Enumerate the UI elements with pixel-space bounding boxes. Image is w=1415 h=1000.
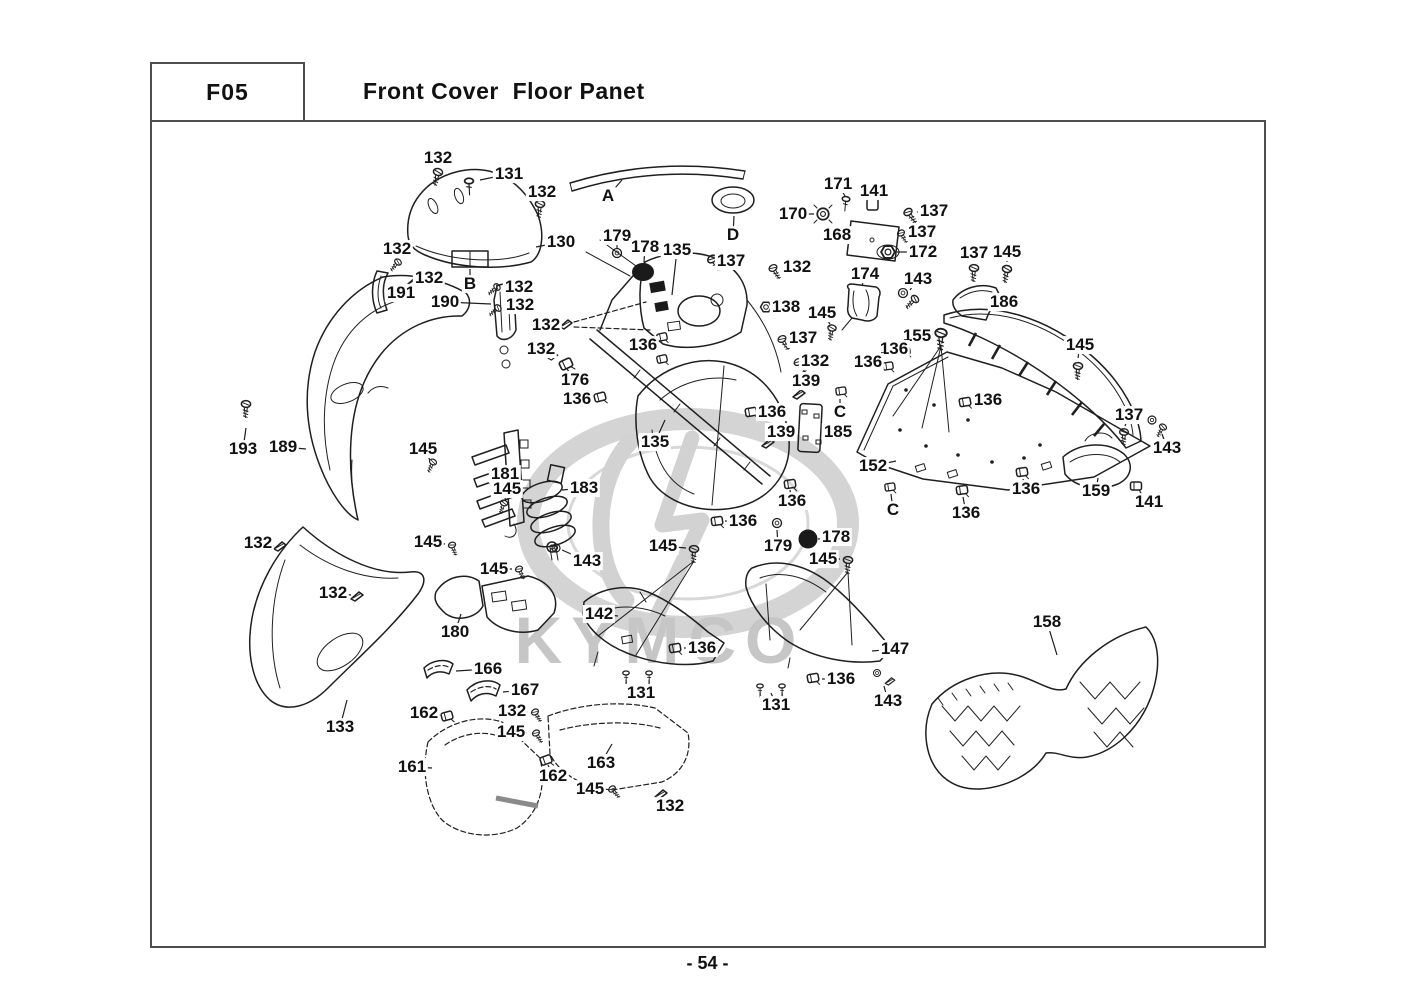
part-166-clip [424,661,453,678]
fasteners-mid-area [441,479,895,799]
part-189-front-cover [307,275,469,520]
part-190-bracket [494,284,516,368]
part-d-grommet [712,187,754,213]
part-147-inner-panel [746,563,891,668]
part-133-front-fender-panel [250,527,424,707]
part-152-floor-panel [857,309,1150,490]
part-191-strip [373,271,389,313]
part-167-clip [467,681,500,701]
catalog-page: { "title_block": { "code": "F05", "title… [0,0,1415,1000]
part-180-bracket [435,576,556,632]
fasteners-135-area [548,249,847,449]
part-174-bracket [842,284,920,330]
part-161-mud-panel [425,719,542,835]
fasteners-top-area [430,168,1167,499]
part-181-bracket [472,430,531,537]
part-185-strip [798,403,822,452]
part-163-trim [548,704,689,790]
part-130-front-top-cover [408,170,542,268]
part-168-bracket-group [814,196,899,261]
part-135-inner-cover [574,240,789,510]
part-158-floor-mat [926,627,1158,789]
part-183-coil [519,465,578,560]
part-a-windshield-trim [570,166,745,191]
parts-illustration [0,0,1415,1000]
